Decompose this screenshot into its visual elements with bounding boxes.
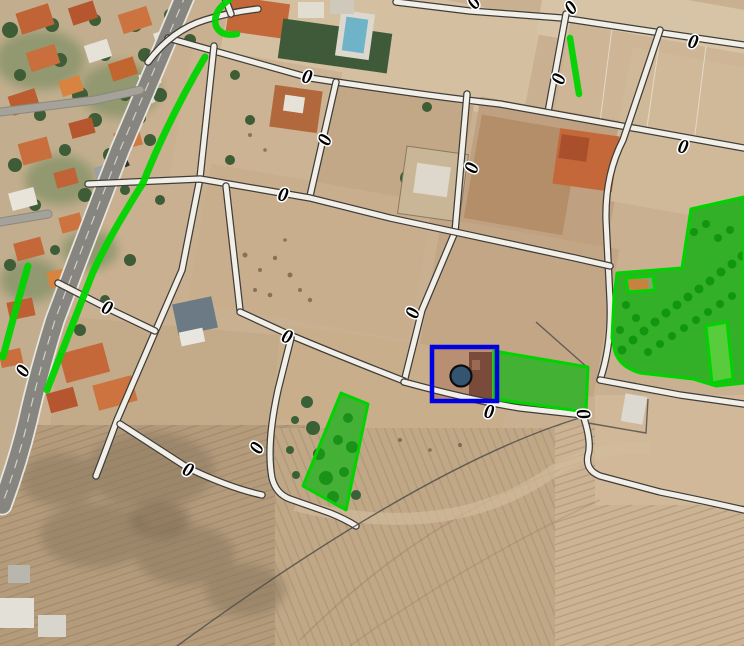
satellite-map-view[interactable]: 00000000000000000 <box>0 0 744 646</box>
map-canvas[interactable]: 00000000000000000 <box>0 0 744 646</box>
parcel-overlay-inner[interactable] <box>706 322 733 383</box>
parcel-point-marker[interactable] <box>451 366 472 387</box>
